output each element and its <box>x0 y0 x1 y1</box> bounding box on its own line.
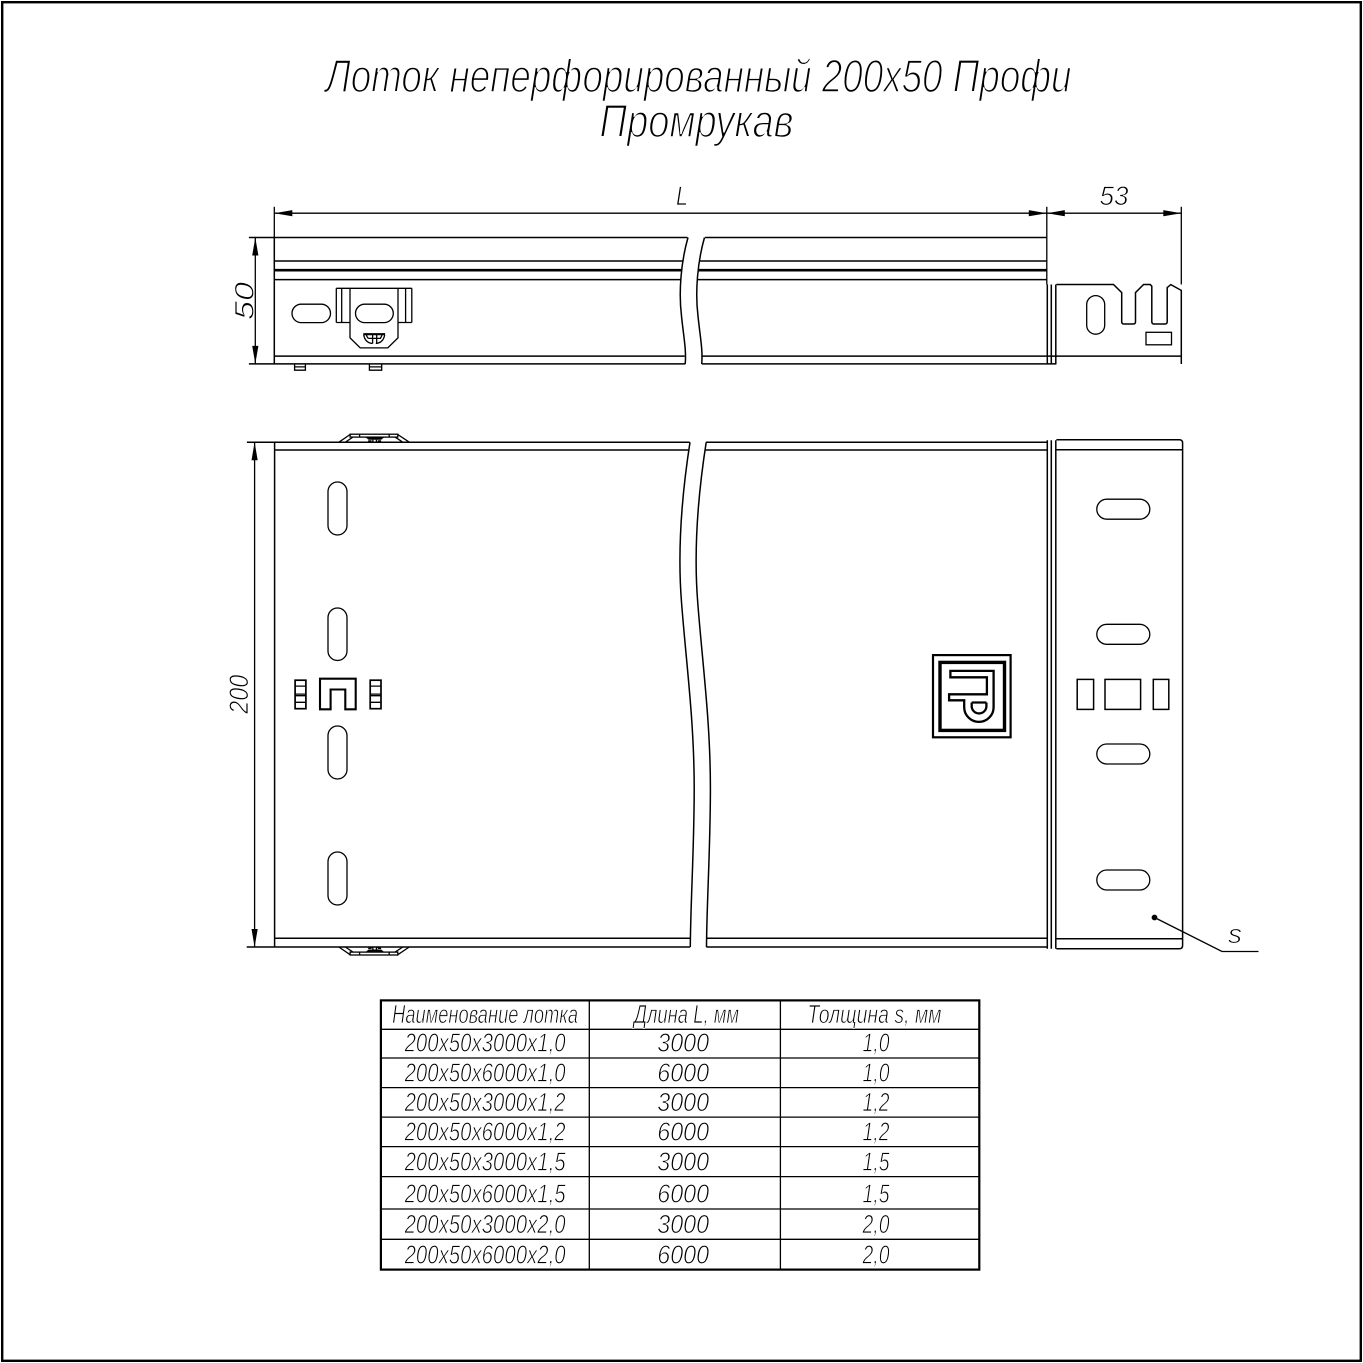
svg-text:3000: 3000 <box>657 1028 709 1058</box>
svg-text:3000: 3000 <box>657 1087 709 1117</box>
svg-text:2,0: 2,0 <box>862 1209 890 1239</box>
svg-text:1,0: 1,0 <box>863 1028 890 1058</box>
svg-text:200х50х6000х1,2: 200х50х6000х1,2 <box>404 1116 566 1146</box>
svg-text:6000: 6000 <box>657 1239 709 1269</box>
svg-text:1,5: 1,5 <box>863 1179 890 1209</box>
svg-text:s: s <box>1228 919 1242 949</box>
svg-text:2,0: 2,0 <box>862 1239 890 1269</box>
svg-text:6000: 6000 <box>657 1179 709 1209</box>
svg-text:200х50х3000х1,0: 200х50х3000х1,0 <box>404 1028 566 1058</box>
svg-text:200х50х3000х1,5: 200х50х3000х1,5 <box>404 1146 566 1176</box>
svg-text:Наименование лотка: Наименование лотка <box>392 999 578 1029</box>
svg-text:200х50х6000х2,0: 200х50х6000х2,0 <box>404 1239 566 1269</box>
svg-text:1,2: 1,2 <box>863 1087 890 1117</box>
svg-text:200х50х6000х1,0: 200х50х6000х1,0 <box>404 1057 566 1087</box>
svg-text:Длина L, мм: Длина L, мм <box>632 999 739 1029</box>
svg-text:200х50х3000х1,2: 200х50х3000х1,2 <box>404 1087 566 1117</box>
svg-text:1,5: 1,5 <box>863 1146 890 1176</box>
svg-text:200х50х6000х1,5: 200х50х6000х1,5 <box>404 1179 566 1209</box>
svg-text:200: 200 <box>224 675 254 715</box>
svg-text:1,2: 1,2 <box>863 1116 890 1146</box>
svg-text:50: 50 <box>230 282 260 320</box>
svg-text:1,0: 1,0 <box>863 1057 890 1087</box>
svg-text:L: L <box>676 181 688 211</box>
svg-text:6000: 6000 <box>657 1057 709 1087</box>
svg-text:200х50х3000х2,0: 200х50х3000х2,0 <box>404 1209 566 1239</box>
svg-text:3000: 3000 <box>657 1209 709 1239</box>
svg-text:3000: 3000 <box>657 1146 709 1176</box>
svg-text:53: 53 <box>1100 181 1129 211</box>
svg-text:Промрукав: Промрукав <box>600 95 794 147</box>
svg-text:Толщина s, мм: Толщина s, мм <box>808 999 942 1029</box>
svg-text:6000: 6000 <box>657 1116 709 1146</box>
